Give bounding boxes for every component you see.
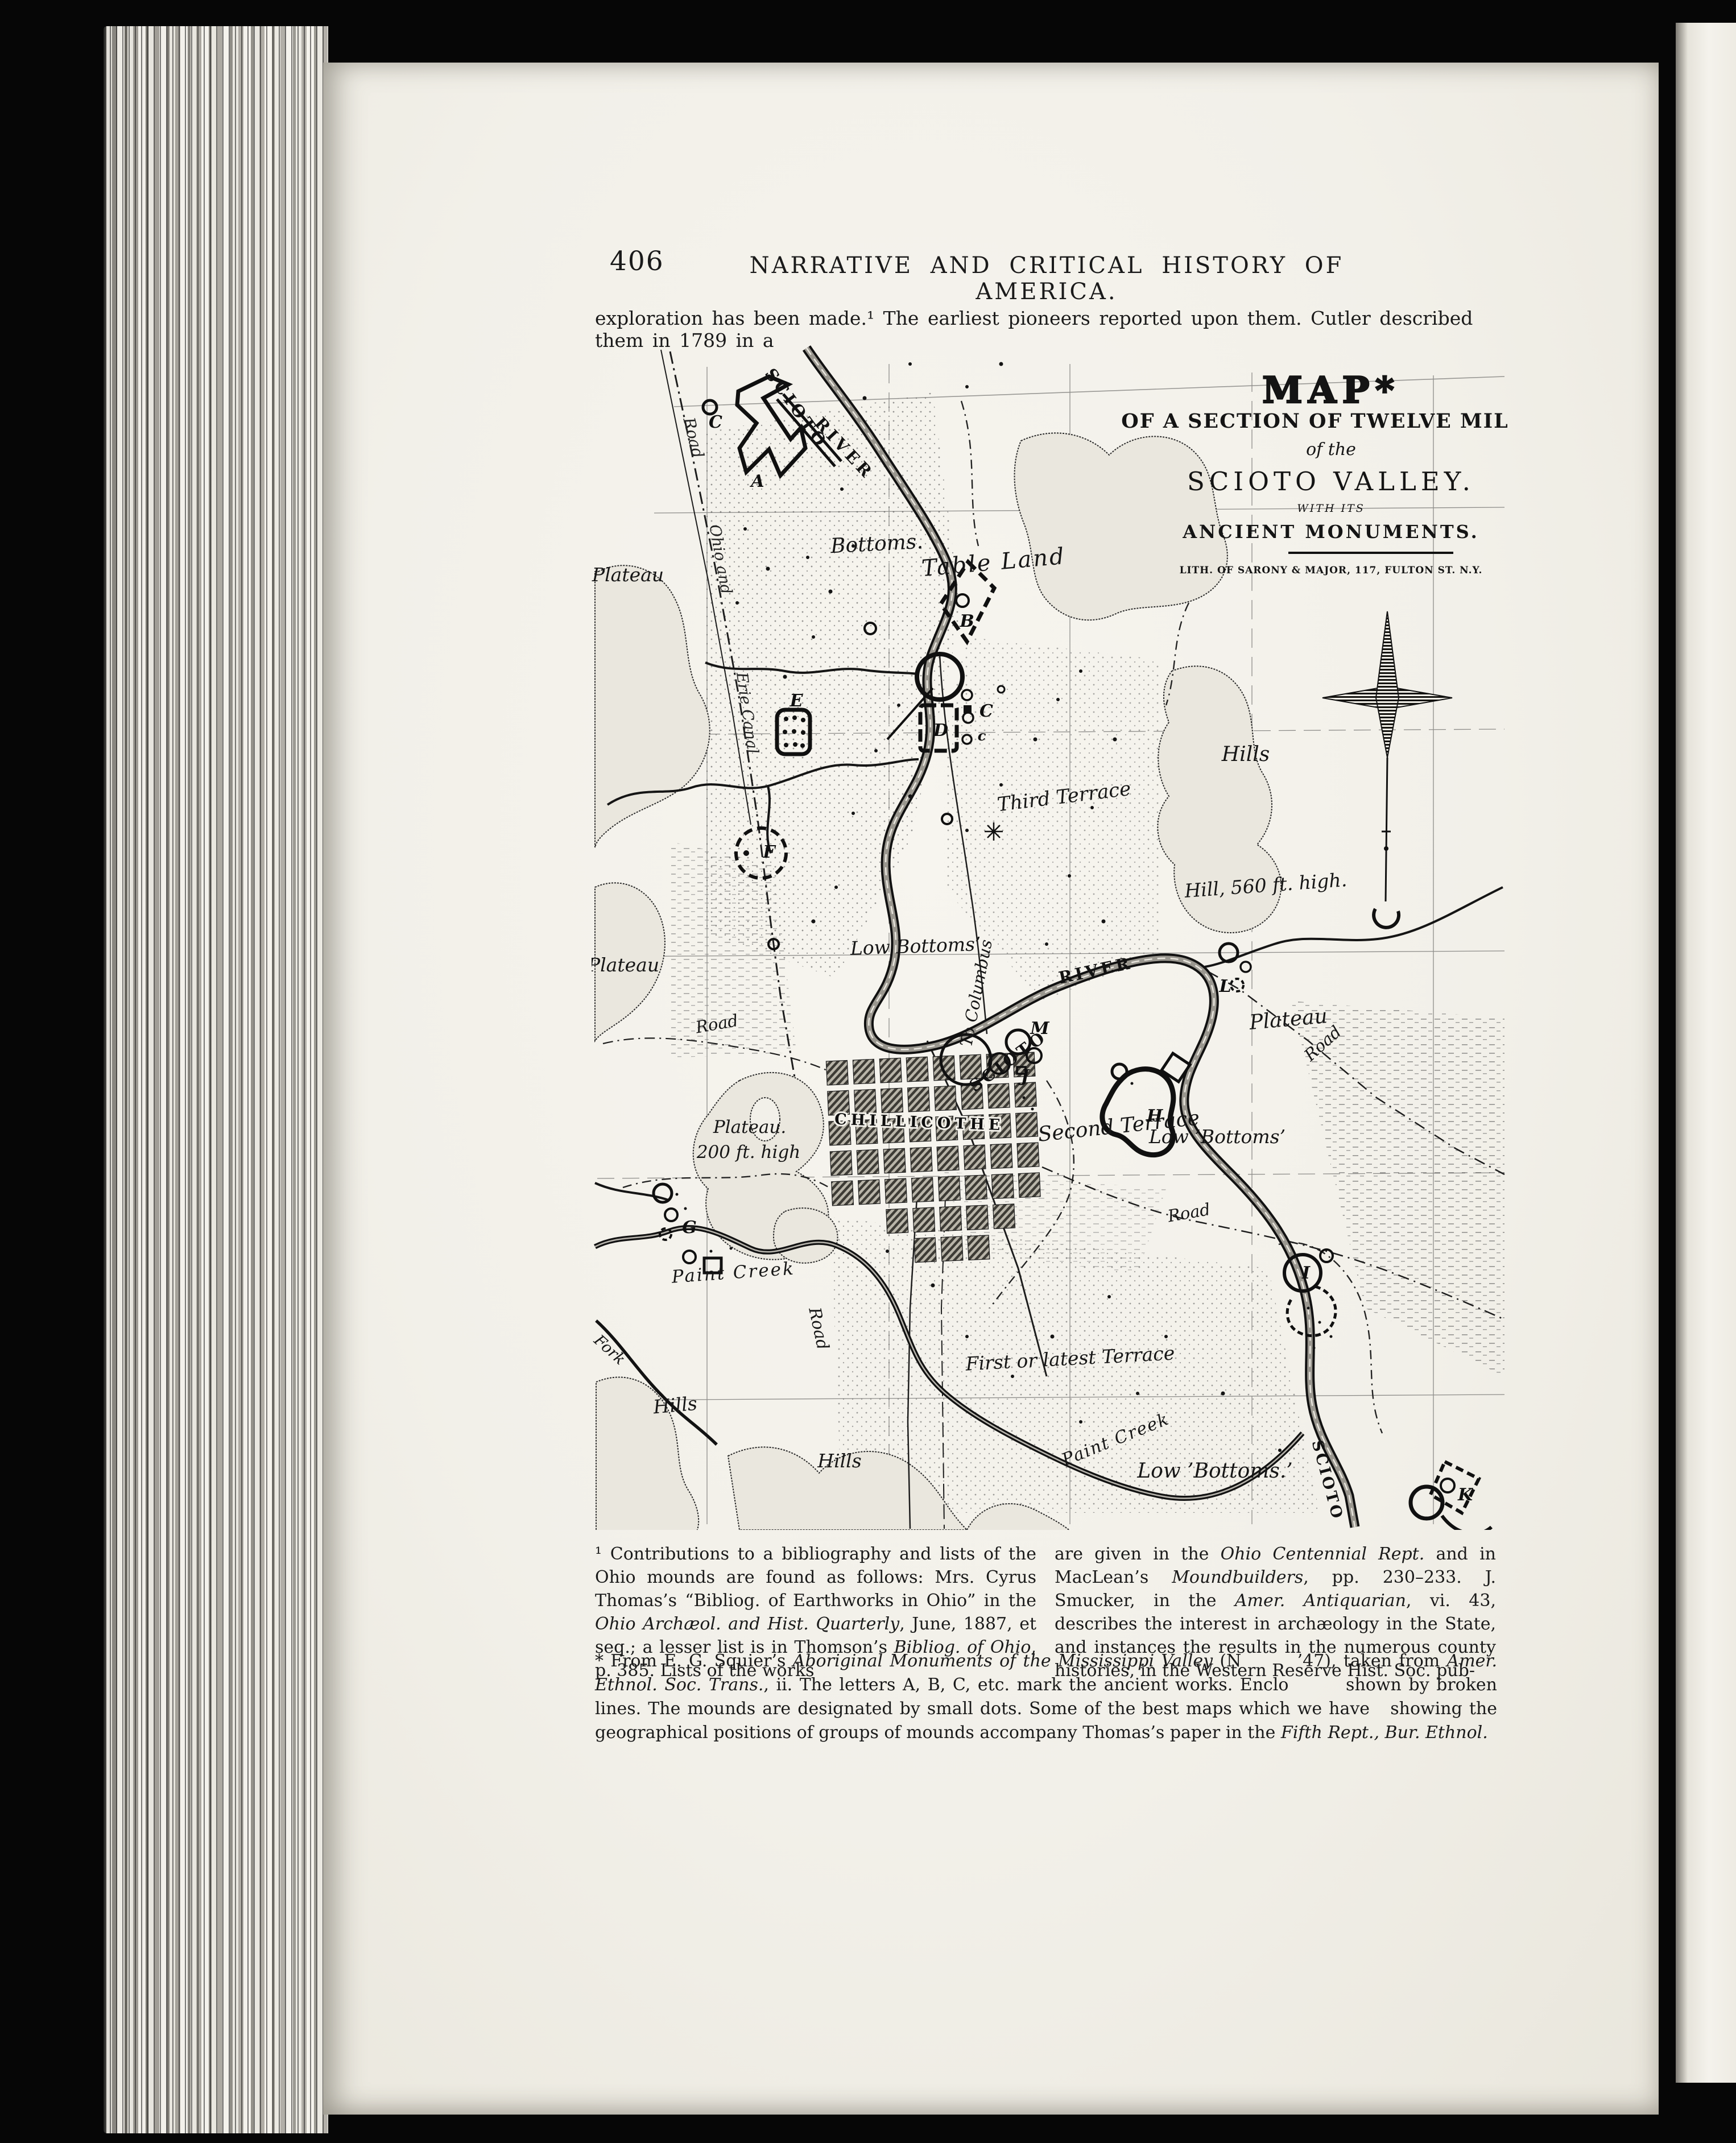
city-block xyxy=(990,1144,1012,1169)
city-block xyxy=(853,1059,875,1084)
earthwork-letter: E xyxy=(790,691,804,711)
adjacent-page-edge xyxy=(1676,23,1736,2083)
city-block xyxy=(826,1060,848,1085)
earthwork-letter: G xyxy=(682,1218,697,1238)
earthwork-K xyxy=(1411,1462,1491,1530)
city-block xyxy=(914,1238,936,1263)
city-block xyxy=(933,1056,955,1081)
footnote-asterisk: * From E. G. Squier’s Aboriginal Monumen… xyxy=(595,1649,1497,1745)
map-imprint: LITH. OF SARONY & MAJOR, 117, FULTON ST.… xyxy=(1180,565,1483,576)
map-title-line1: MAP* xyxy=(1262,369,1400,412)
city-block xyxy=(1018,1173,1040,1198)
earthwork-letter: C xyxy=(709,412,722,432)
city-block xyxy=(879,1058,902,1083)
city-block xyxy=(940,1206,962,1231)
map-label: Plateau xyxy=(592,954,659,976)
city-block xyxy=(910,1147,932,1172)
footnote-segment: ¹ Contributions to a bibliography and li… xyxy=(595,1544,1036,1611)
map-title-line6: ANCIENT MONUMENTS. xyxy=(1182,521,1479,543)
scioto-valley-map: MAP* OF A SECTION OF TWELVE MILES of the… xyxy=(592,341,1507,1530)
city-block xyxy=(830,1151,852,1176)
footnote-segment: Amer. Antiquarian xyxy=(1235,1591,1406,1611)
earthwork-letter: H xyxy=(1146,1106,1164,1126)
city-block xyxy=(966,1205,989,1230)
footnote-segment: Ohio Archæol. and Hist. Quarterly xyxy=(595,1614,899,1634)
running-title: NARRATIVE AND CRITICAL HISTORY OF AMERIC… xyxy=(694,253,1399,305)
footnote-segment: Fifth Rept., Bur. Ethnol. xyxy=(1281,1723,1488,1743)
city-block xyxy=(908,1087,930,1112)
map-label: Low ’Bottoms’ xyxy=(1148,1126,1286,1148)
city-block xyxy=(886,1209,908,1234)
map-title-line4: SCIOTO VALLEY. xyxy=(1187,466,1475,497)
map-label: Road xyxy=(679,415,708,460)
city-block xyxy=(993,1204,1015,1229)
city-block xyxy=(968,1235,990,1260)
map-label: Road xyxy=(805,1305,833,1352)
city-block xyxy=(938,1176,960,1201)
scanned-book-photo: 406 NARRATIVE AND CRITICAL HISTORY OF AM… xyxy=(0,0,1736,2143)
city-block xyxy=(885,1178,907,1203)
footnote-segment: Ohio Centennial Rept. xyxy=(1221,1544,1425,1564)
city-block xyxy=(906,1057,928,1082)
map-label: Hills xyxy=(652,1392,698,1418)
earthwork-letter: F xyxy=(762,842,776,862)
city-block xyxy=(858,1180,881,1205)
city-block xyxy=(857,1149,879,1174)
city-block xyxy=(964,1145,986,1170)
city-block xyxy=(987,1083,1010,1108)
map-label: Low Bottoms’ xyxy=(849,933,981,959)
footnote-segment: (N ’47), taken from xyxy=(1213,1651,1447,1671)
map-label: Plateau xyxy=(592,564,664,586)
map-label: Plateau. xyxy=(713,1117,786,1137)
city-block xyxy=(881,1088,903,1113)
map-label: Low ’Bottoms.’ xyxy=(1136,1459,1293,1483)
city-block xyxy=(1016,1112,1038,1137)
map-label: Hills xyxy=(1221,743,1270,766)
city-block xyxy=(935,1086,957,1111)
map-label: Road xyxy=(1165,1199,1212,1226)
city-block xyxy=(991,1174,1014,1199)
footnote-segment: * From E. G. Squier’s xyxy=(595,1651,793,1671)
earthwork-letter: C xyxy=(979,701,993,721)
map-label: 200 ft. high xyxy=(696,1142,800,1162)
earthwork-letter: D xyxy=(933,721,948,740)
city-block xyxy=(883,1148,906,1173)
map-label: Hills xyxy=(817,1450,861,1472)
city-block xyxy=(965,1175,987,1200)
earthwork-letter: M xyxy=(1030,1019,1049,1039)
city-block xyxy=(832,1181,854,1206)
earthwork-letter: B xyxy=(959,611,974,631)
map-title-line3: of the xyxy=(1306,440,1356,460)
map-title-line2: OF A SECTION OF TWELVE MILES xyxy=(1121,409,1507,433)
earthwork-letter: A xyxy=(749,471,764,491)
footnote-segment: Moundbuilders xyxy=(1172,1567,1303,1587)
book-page-edges xyxy=(104,26,328,2133)
city-block xyxy=(1017,1143,1039,1168)
city-block xyxy=(937,1146,959,1171)
footnote-segment: are given in the xyxy=(1055,1544,1221,1564)
earthwork-letter: K xyxy=(1457,1485,1474,1505)
city-block xyxy=(854,1089,877,1114)
map-label: Bottoms. xyxy=(829,530,924,558)
earthwork-letter: I xyxy=(1301,1263,1311,1283)
footnote-segment: Aboriginal Monuments of the Mississippi … xyxy=(793,1651,1213,1671)
map-title-line5: WITH ITS xyxy=(1297,502,1365,515)
earthwork-letter: L xyxy=(1218,977,1231,996)
city-block xyxy=(941,1236,963,1261)
city-block xyxy=(913,1207,935,1232)
earthwork-letter: c xyxy=(978,727,986,744)
city-block xyxy=(912,1177,934,1202)
page-number: 406 xyxy=(610,246,664,277)
